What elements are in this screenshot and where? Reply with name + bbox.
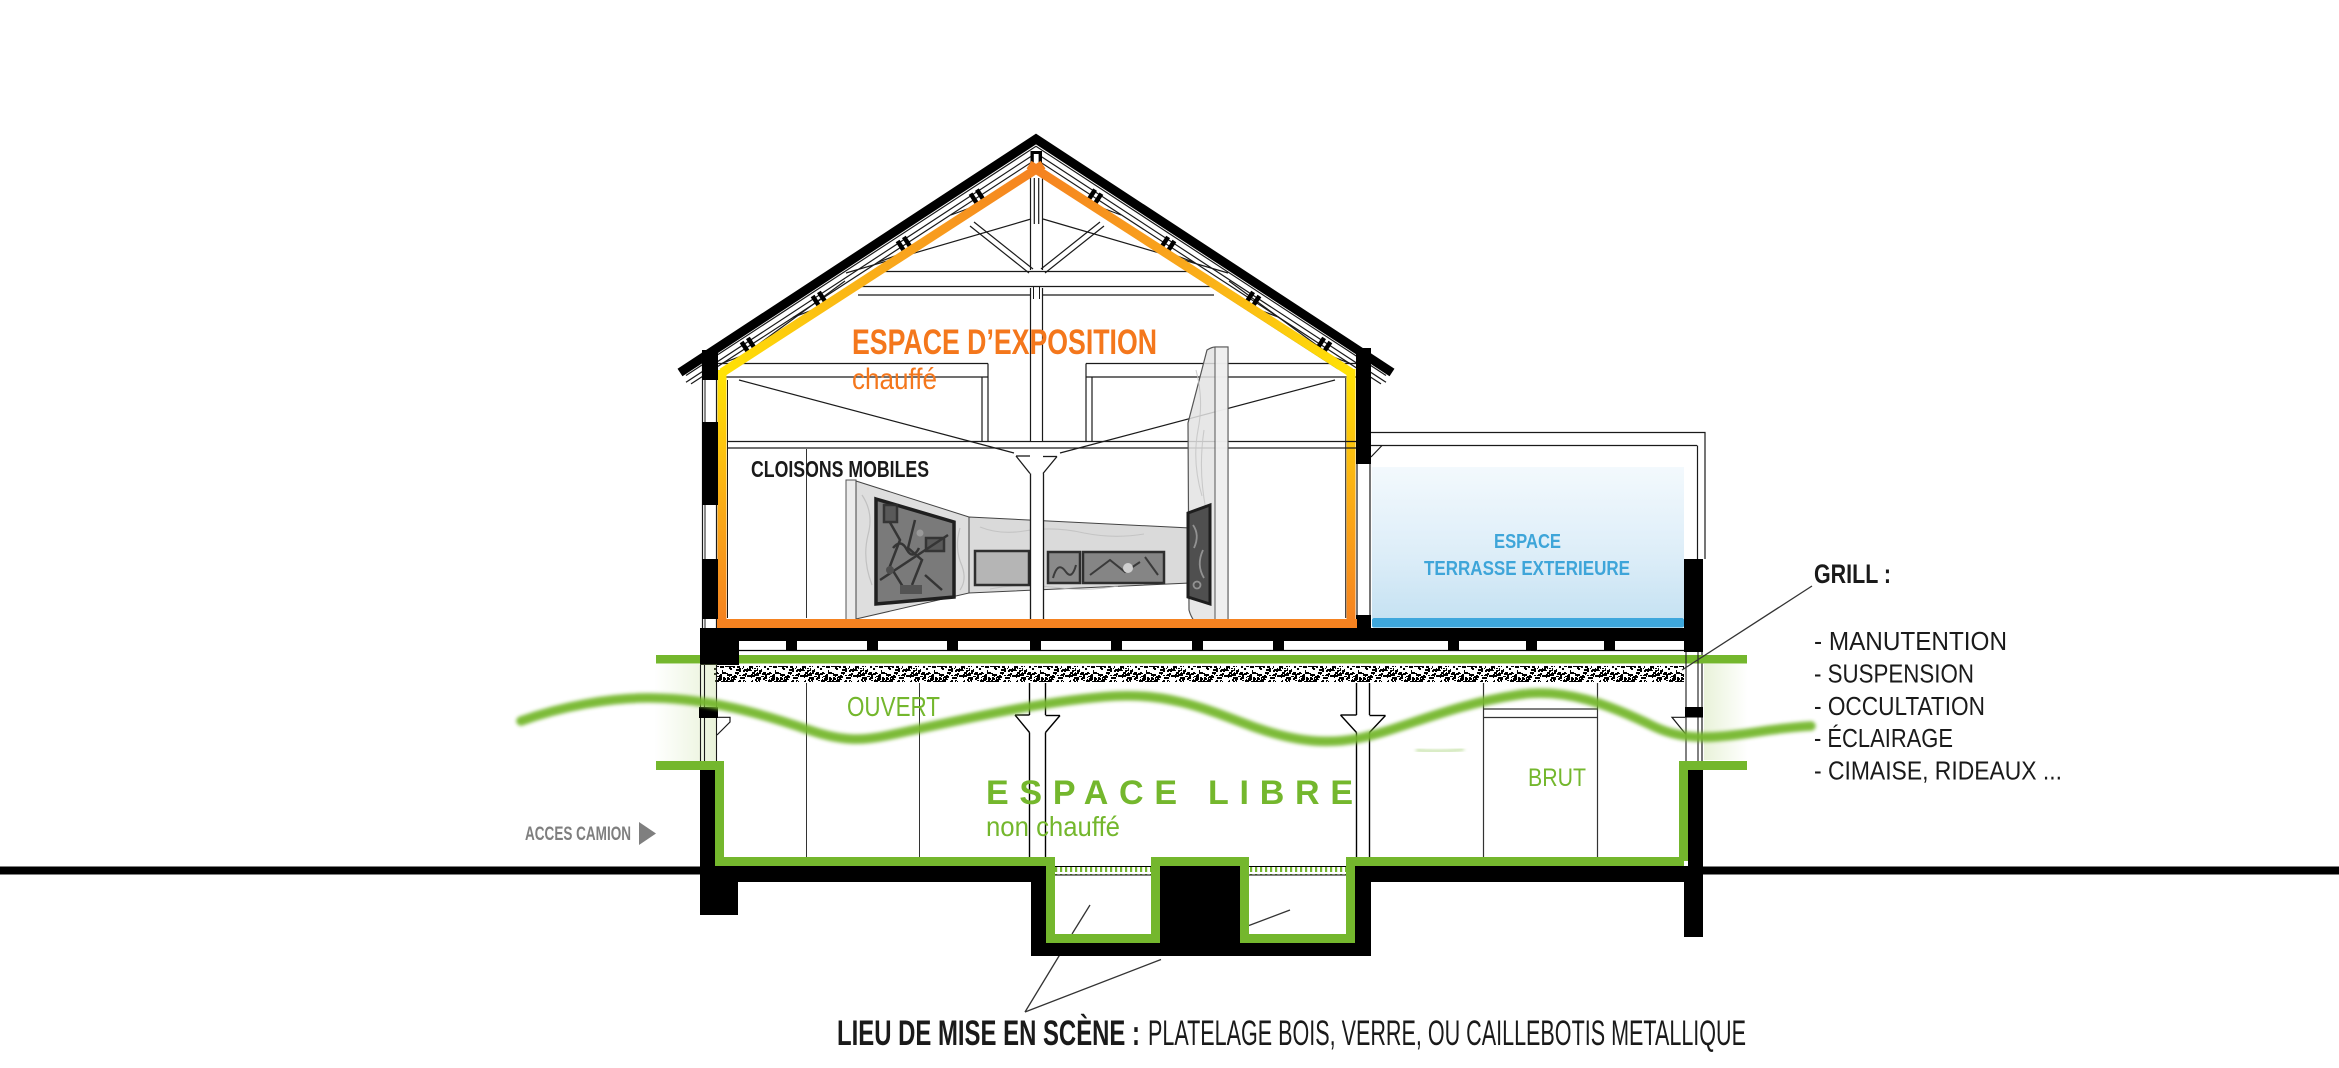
svg-text:- OCCULTATION: - OCCULTATION — [1814, 691, 1985, 721]
svg-text:ESPACE D’EXPOSITION: ESPACE D’EXPOSITION — [852, 323, 1157, 362]
svg-text:- CIMAISE, RIDEAUX ...: - CIMAISE, RIDEAUX ... — [1814, 756, 2062, 786]
svg-text:OUVERT: OUVERT — [847, 691, 940, 722]
svg-text:BRUT: BRUT — [1528, 764, 1586, 792]
svg-text:CLOISONS MOBILES: CLOISONS MOBILES — [751, 456, 929, 482]
svg-text:- ÉCLAIRAGE: - ÉCLAIRAGE — [1814, 723, 1953, 753]
svg-text:ESPACE LIBRE: ESPACE LIBRE — [986, 774, 1353, 812]
svg-text:non chauffé: non chauffé — [986, 811, 1120, 842]
svg-text:- SUSPENSION: - SUSPENSION — [1814, 658, 1974, 688]
svg-text:- MANUTENTION: - MANUTENTION — [1814, 626, 2007, 656]
svg-text:ESPACE: ESPACE — [1494, 531, 1561, 553]
svg-text:LIEU DE MISE EN SCÈNE :PLATELA: LIEU DE MISE EN SCÈNE :PLATELAGE BOIS, V… — [837, 1013, 1746, 1053]
svg-text:TERRASSE EXTERIEURE: TERRASSE EXTERIEURE — [1424, 558, 1630, 580]
svg-text:GRILL :: GRILL : — [1814, 559, 1891, 589]
svg-text:ACCES CAMION: ACCES CAMION — [525, 824, 631, 845]
svg-text:chauffé: chauffé — [852, 363, 937, 396]
